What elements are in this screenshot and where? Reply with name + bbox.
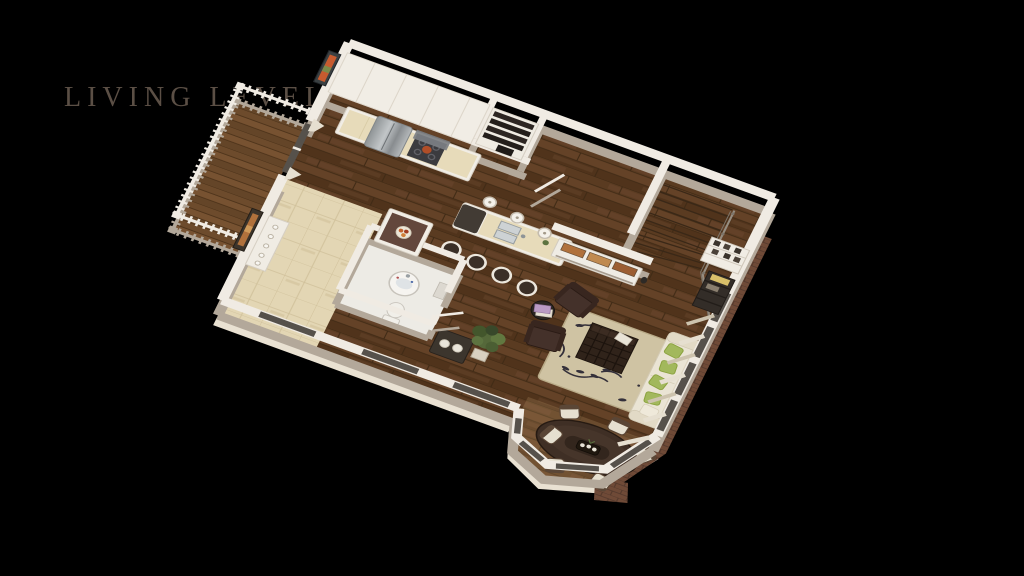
floor-plan-scene: LIVING LEVEL — [0, 0, 1024, 576]
slider-mullion — [296, 148, 297, 150]
floor-plan-render — [0, 0, 1024, 576]
